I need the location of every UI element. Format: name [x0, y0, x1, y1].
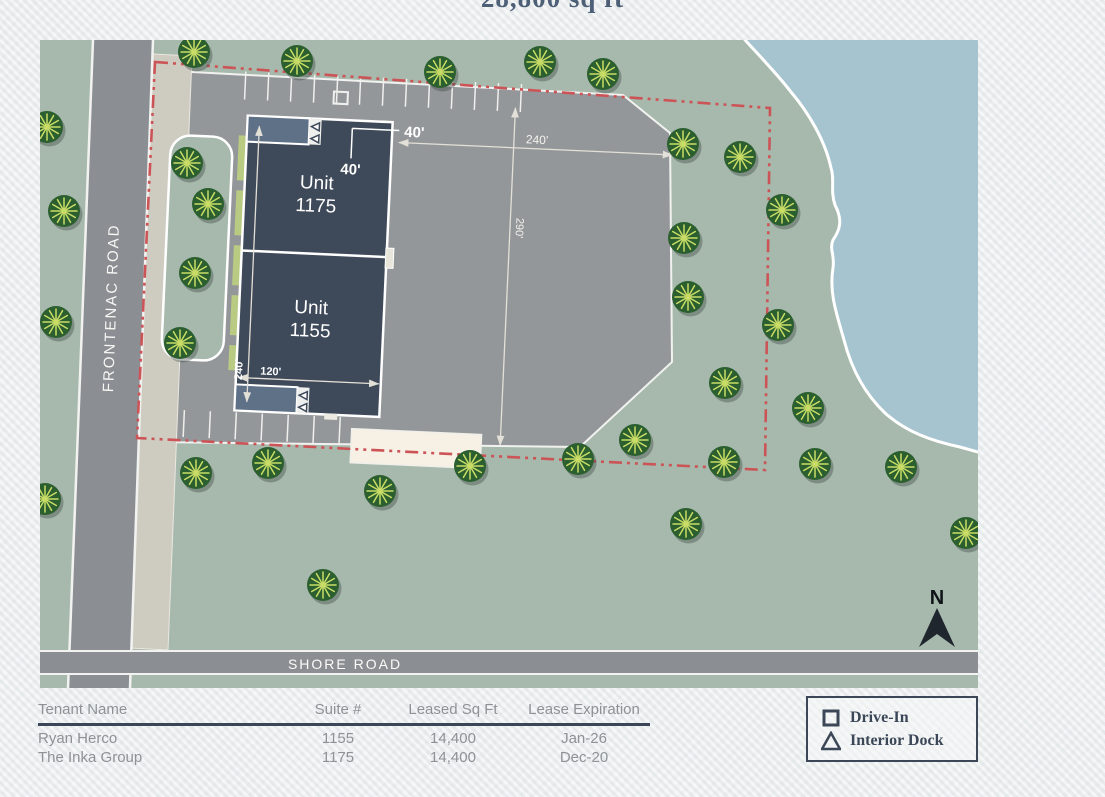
- unit-1155-label-line2: 1155: [289, 320, 331, 343]
- tenant-name: Ryan Herco: [38, 725, 288, 749]
- dim-40-a: 40': [404, 124, 425, 142]
- north-label: N: [930, 587, 944, 609]
- leased-sqft: 14,400: [388, 748, 518, 767]
- dim-290: 290': [513, 218, 526, 239]
- dock-bottom: [234, 384, 309, 413]
- site-plan-page: 28,800 sq ft: [0, 0, 1105, 797]
- legend-label: Drive-In: [850, 709, 909, 727]
- tenant-name: The Inka Group: [38, 748, 288, 767]
- table-header-row: Tenant Name Suite # Leased Sq Ft Lease E…: [38, 701, 650, 725]
- table-row: Ryan Herco 1155 14,400 Jan-26: [38, 725, 650, 749]
- building-right-tab: [385, 248, 394, 268]
- dock-top: [247, 116, 322, 145]
- header-leased-sqft: Leased Sq Ft: [388, 701, 518, 725]
- tenant-table: Tenant Name Suite # Leased Sq Ft Lease E…: [38, 701, 650, 767]
- map-legend: Drive-In Interior Dock: [806, 696, 978, 762]
- site-plan-svg: SHORE ROAD: [40, 40, 978, 688]
- lease-expiration: Jan-26: [518, 725, 650, 749]
- leased-sqft: 14,400: [388, 725, 518, 749]
- unit-1155-label-line1: Unit: [294, 297, 329, 320]
- header-lease-expiration: Lease Expiration: [518, 701, 650, 725]
- shore-road: SHORE ROAD: [40, 651, 978, 674]
- dim-120: 120': [260, 365, 282, 378]
- dim-240-lot: 240': [526, 132, 549, 147]
- suite-number: 1175: [288, 748, 388, 767]
- drive-in-icon: [821, 708, 841, 728]
- lease-expiration: Dec-20: [518, 748, 650, 767]
- page-title: 28,800 sq ft: [0, 0, 1105, 12]
- unit-1175-label-line2: 1175: [295, 195, 337, 218]
- header-tenant-name: Tenant Name: [38, 701, 288, 725]
- unit-1175-label-line1: Unit: [299, 172, 334, 195]
- legend-label: Interior Dock: [850, 732, 943, 750]
- dim-240-building: 240': [233, 358, 246, 380]
- dim-40-b: 40': [340, 161, 361, 179]
- building-bottom-vent: [324, 413, 337, 420]
- legend-item-interior-dock: Interior Dock: [821, 731, 976, 751]
- site-plan-map: SHORE ROAD: [40, 40, 978, 688]
- interior-dock-icon: [821, 731, 841, 751]
- header-suite: Suite #: [288, 701, 388, 725]
- shore-road-label: SHORE ROAD: [288, 656, 402, 672]
- legend-item-drive-in: Drive-In: [821, 708, 976, 728]
- table-row: The Inka Group 1175 14,400 Dec-20: [38, 748, 650, 767]
- suite-number: 1155: [288, 725, 388, 749]
